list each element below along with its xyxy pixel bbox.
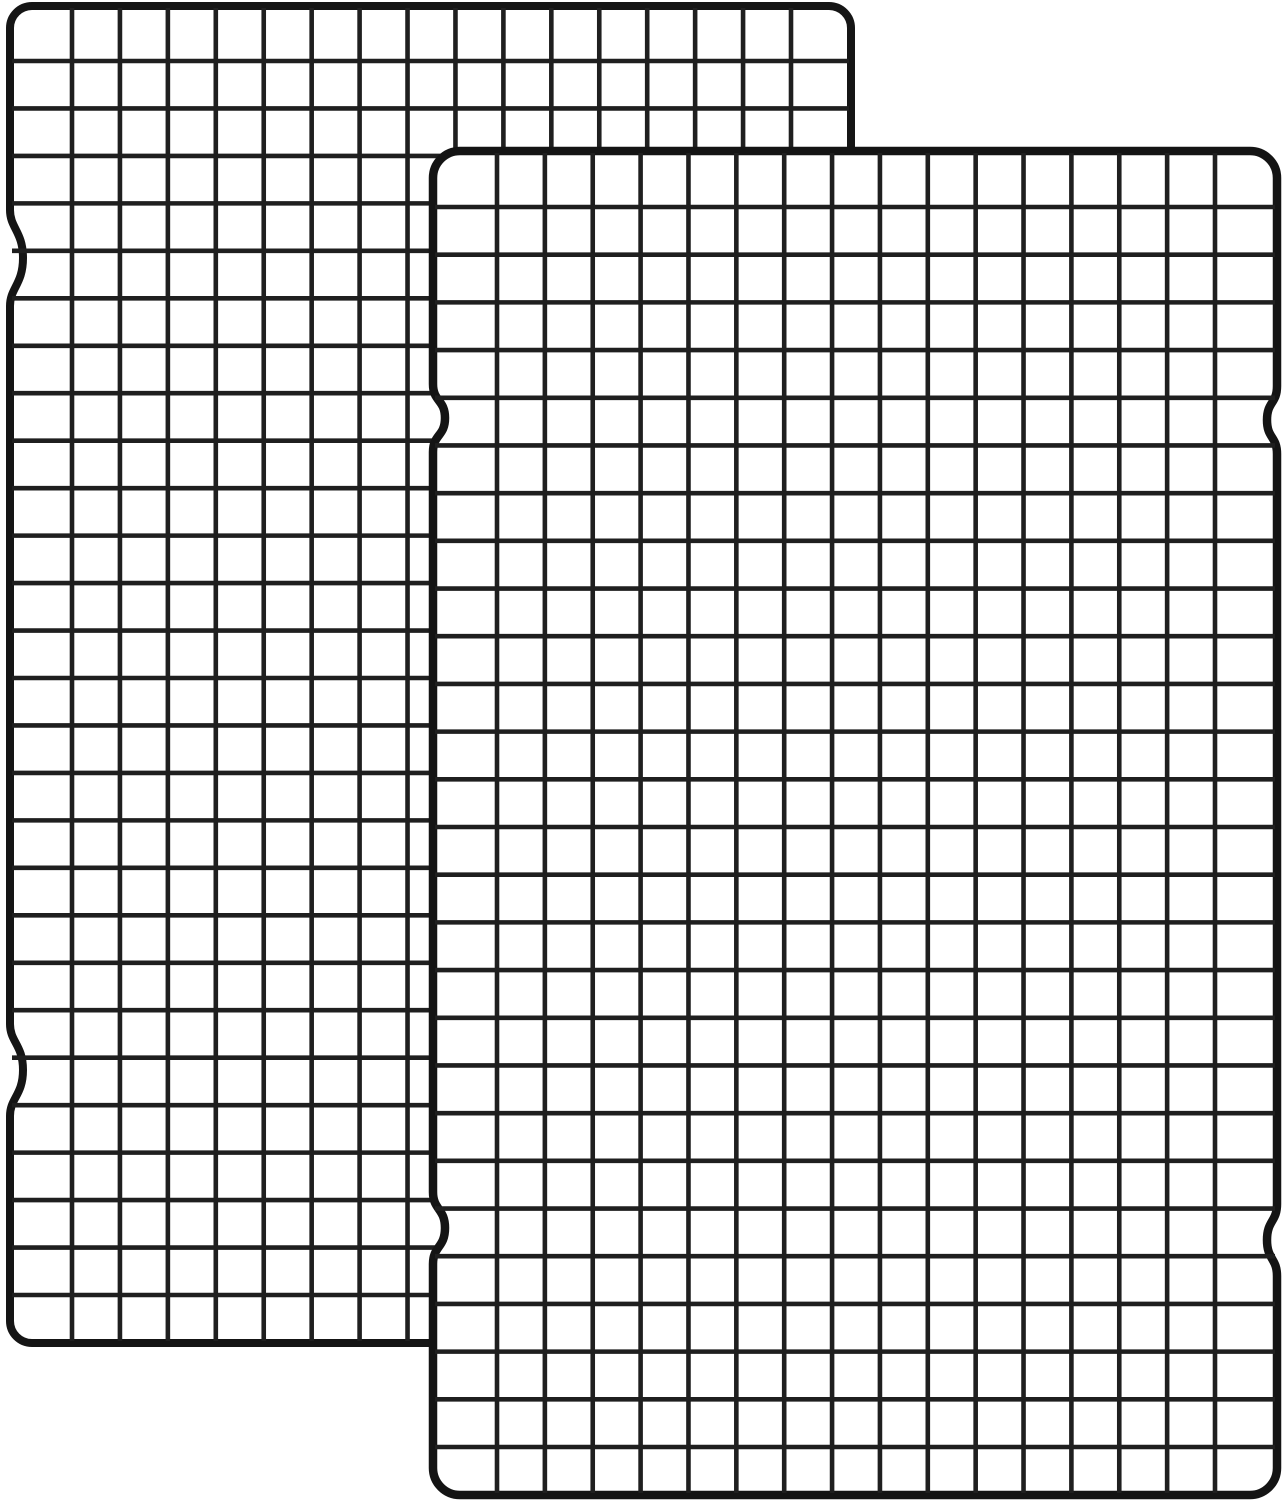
cooling-rack-front-frame xyxy=(433,151,1277,1495)
cooling-rack-front xyxy=(433,151,1277,1495)
cooling-racks-scene xyxy=(0,0,1283,1500)
product-photo xyxy=(0,0,1283,1500)
